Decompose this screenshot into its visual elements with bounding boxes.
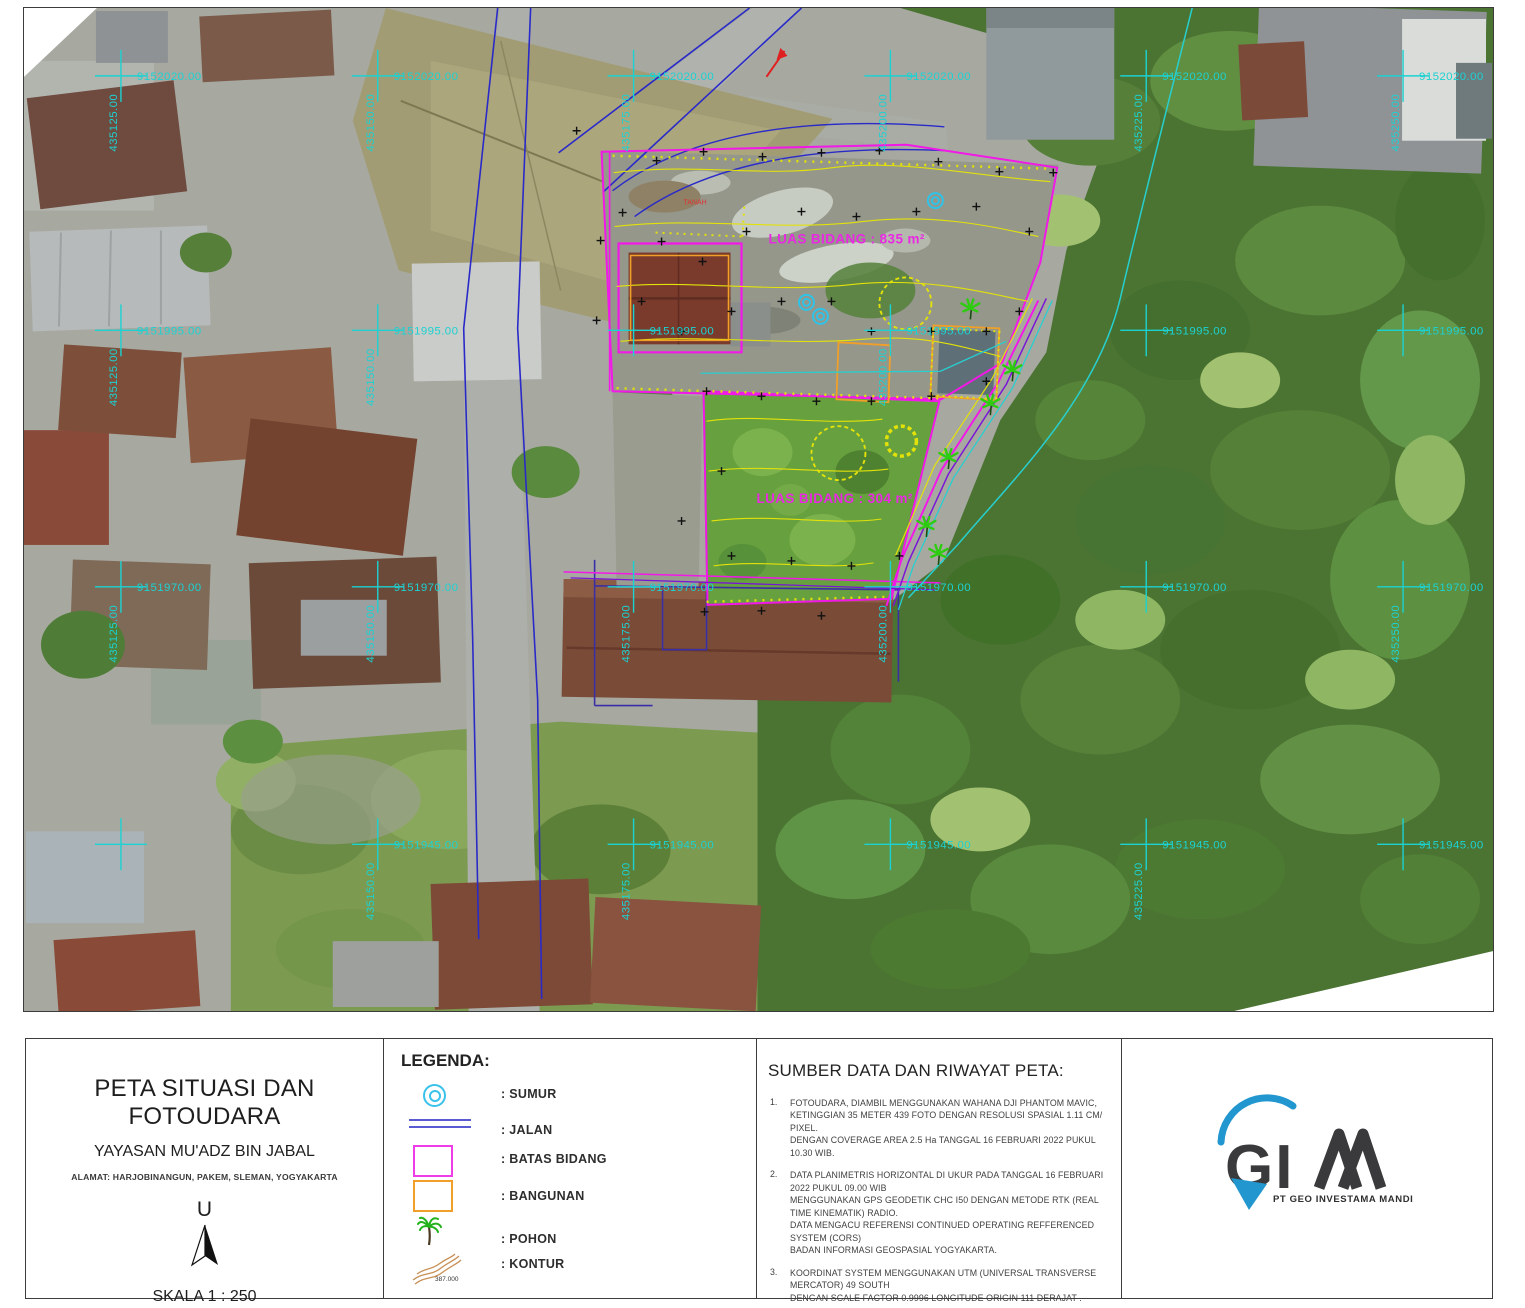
kontur-icon: 387.000 bbox=[411, 1252, 463, 1286]
svg-text:9151970.00: 9151970.00 bbox=[906, 582, 971, 594]
legend-label-jalan: : JALAN bbox=[501, 1123, 552, 1137]
data-source-heading: SUMBER DATA DAN RIWAYAT PETA: bbox=[768, 1061, 1121, 1081]
svg-text:9151995.00: 9151995.00 bbox=[1162, 325, 1227, 337]
item-number: 2. bbox=[770, 1169, 790, 1256]
kontur-elevation-value: 387.000 bbox=[435, 1276, 459, 1283]
svg-text:9151970.00: 9151970.00 bbox=[1162, 582, 1227, 594]
svg-text:435175.00: 435175.00 bbox=[621, 605, 633, 663]
svg-text:9151945.00: 9151945.00 bbox=[394, 839, 459, 851]
svg-text:LUAS BIDANG : 835 m²: LUAS BIDANG : 835 m² bbox=[768, 232, 924, 247]
data-source-section: SUMBER DATA DAN RIWAYAT PETA: 1. FOTOUDA… bbox=[756, 1039, 1121, 1298]
list-item: 3. KOORDINAT SYSTEM MENGGUNAKAN UTM (UNI… bbox=[770, 1267, 1111, 1304]
svg-text:435175.00: 435175.00 bbox=[621, 862, 633, 920]
item-text: FOTOUDARA, DIAMBIL MENGGUNAKAN WAHANA DJ… bbox=[790, 1097, 1111, 1159]
svg-text:9152020.00: 9152020.00 bbox=[906, 71, 971, 83]
svg-text:9151995.00: 9151995.00 bbox=[137, 325, 202, 337]
title-section: PETA SITUASI DAN FOTOUDARA YAYASAN MU'AD… bbox=[26, 1039, 383, 1298]
svg-text:435125.00: 435125.00 bbox=[108, 605, 120, 663]
svg-text:9151945.00: 9151945.00 bbox=[906, 839, 971, 851]
svg-text:435150.00: 435150.00 bbox=[365, 94, 377, 152]
svg-text:435200.00: 435200.00 bbox=[877, 348, 889, 406]
north-label: U bbox=[26, 1198, 383, 1222]
address-line: ALAMAT: HARJOBINANGUN, PAKEM, SLEMAN, YO… bbox=[26, 1172, 383, 1182]
pohon-icon bbox=[417, 1215, 443, 1247]
legend-label-kontur: : KONTUR bbox=[501, 1257, 565, 1271]
svg-text:435175.00: 435175.00 bbox=[621, 94, 633, 152]
north-arrow-icon bbox=[26, 1223, 383, 1274]
list-item: 1. FOTOUDARA, DIAMBIL MENGGUNAKAN WAHANA… bbox=[770, 1097, 1111, 1159]
svg-text:9151995.00: 9151995.00 bbox=[650, 325, 715, 337]
svg-text:LUAS BIDANG : 304 m²: LUAS BIDANG : 304 m² bbox=[757, 491, 913, 506]
logo-section: GI PT GEO INVESTAMA MANDIRI bbox=[1121, 1039, 1494, 1298]
sumur-icon bbox=[423, 1084, 446, 1107]
svg-text:435225.00: 435225.00 bbox=[1133, 862, 1145, 920]
svg-text:TANAH: TANAH bbox=[684, 200, 707, 207]
map-sheet: 9152020.009152020.009152020.009152020.00… bbox=[0, 0, 1525, 1308]
svg-text:9151945.00: 9151945.00 bbox=[1162, 839, 1227, 851]
photo-base bbox=[24, 8, 1493, 1011]
bangunan-icon bbox=[413, 1180, 453, 1212]
svg-text:9151945.00: 9151945.00 bbox=[650, 839, 715, 851]
legend-label-sumur: : SUMUR bbox=[501, 1087, 557, 1101]
company-name: PT GEO INVESTAMA MANDIRI bbox=[1273, 1194, 1413, 1205]
legend-heading: LEGENDA: bbox=[401, 1051, 490, 1071]
svg-text:9152020.00: 9152020.00 bbox=[1419, 71, 1484, 83]
svg-text:435200.00: 435200.00 bbox=[877, 94, 889, 152]
svg-text:9151995.00: 9151995.00 bbox=[394, 325, 459, 337]
svg-text:435250.00: 435250.00 bbox=[1390, 605, 1402, 663]
item-number: 3. bbox=[770, 1267, 790, 1304]
svg-text:435225.00: 435225.00 bbox=[1133, 94, 1145, 152]
legend-section: LEGENDA: : SUMUR : JALAN : BATAS BIDANG … bbox=[383, 1039, 756, 1298]
svg-text:435150.00: 435150.00 bbox=[365, 348, 377, 406]
company-logo: GI PT GEO INVESTAMA MANDIRI bbox=[1203, 1092, 1413, 1217]
svg-text:435200.00: 435200.00 bbox=[877, 605, 889, 663]
legend-label-batas-bidang: : BATAS BIDANG bbox=[501, 1152, 607, 1166]
svg-text:9151970.00: 9151970.00 bbox=[1419, 582, 1484, 594]
legend-label-bangunan: : BANGUNAN bbox=[501, 1189, 585, 1203]
svg-text:435150.00: 435150.00 bbox=[365, 605, 377, 663]
title-block: PETA SITUASI DAN FOTOUDARA YAYASAN MU'AD… bbox=[25, 1038, 1493, 1299]
map-frame: 9152020.009152020.009152020.009152020.00… bbox=[23, 7, 1494, 1012]
svg-text:435125.00: 435125.00 bbox=[108, 94, 120, 152]
batas-bidang-icon bbox=[413, 1145, 453, 1177]
svg-text:9151945.00: 9151945.00 bbox=[1419, 839, 1484, 851]
svg-text:9151995.00: 9151995.00 bbox=[906, 325, 971, 337]
svg-text:9152020.00: 9152020.00 bbox=[137, 71, 202, 83]
svg-text:9151970.00: 9151970.00 bbox=[394, 582, 459, 594]
page-subtitle: YAYASAN MU'ADZ BIN JABAL bbox=[26, 1143, 383, 1161]
svg-text:9152020.00: 9152020.00 bbox=[394, 71, 459, 83]
svg-text:9151995.00: 9151995.00 bbox=[1419, 325, 1484, 337]
page-title: PETA SITUASI DAN FOTOUDARA bbox=[26, 1075, 383, 1131]
jalan-icon bbox=[409, 1119, 471, 1128]
item-text: KOORDINAT SYSTEM MENGGUNAKAN UTM (UNIVER… bbox=[790, 1267, 1111, 1304]
data-source-list: 1. FOTOUDARA, DIAMBIL MENGGUNAKAN WAHANA… bbox=[770, 1097, 1111, 1308]
item-number: 1. bbox=[770, 1097, 790, 1159]
svg-text:435125.00: 435125.00 bbox=[108, 348, 120, 406]
svg-text:9152020.00: 9152020.00 bbox=[650, 71, 715, 83]
svg-text:9151970.00: 9151970.00 bbox=[650, 582, 715, 594]
svg-text:435250.00: 435250.00 bbox=[1390, 94, 1402, 152]
svg-text:9151970.00: 9151970.00 bbox=[137, 582, 202, 594]
svg-text:9152020.00: 9152020.00 bbox=[1162, 71, 1227, 83]
scale-label: SKALA 1 : 250 bbox=[26, 1288, 383, 1306]
item-text: DATA PLANIMETRIS HORIZONTAL DI UKUR PADA… bbox=[790, 1169, 1111, 1256]
aerial-orthophoto: 9152020.009152020.009152020.009152020.00… bbox=[24, 8, 1493, 1011]
svg-text:435150.00: 435150.00 bbox=[365, 862, 377, 920]
legend-label-pohon: : POHON bbox=[501, 1232, 557, 1246]
list-item: 2. DATA PLANIMETRIS HORIZONTAL DI UKUR P… bbox=[770, 1169, 1111, 1256]
